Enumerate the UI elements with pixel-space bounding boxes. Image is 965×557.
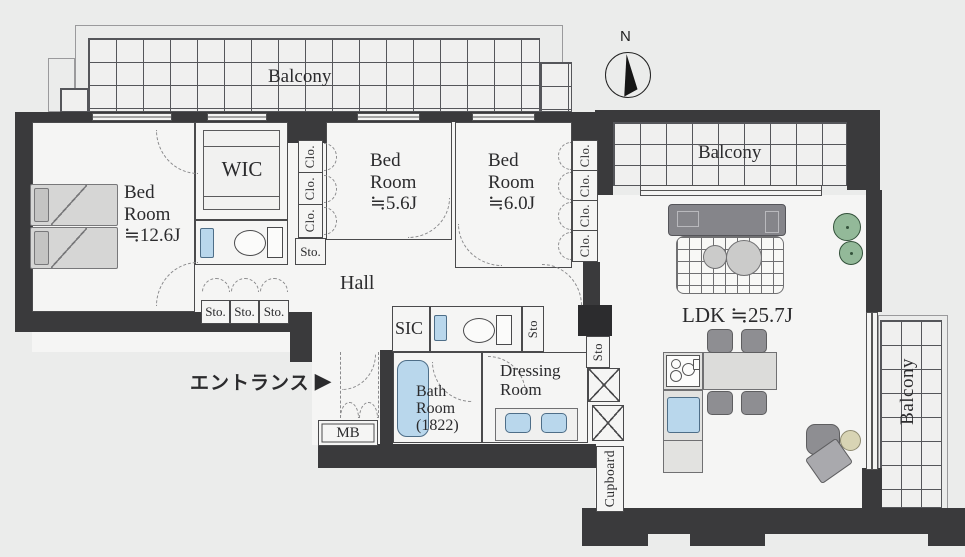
entrance-label: エントランス: [190, 368, 310, 395]
balcony-top-step-left: [60, 88, 88, 112]
plant-icon: [833, 213, 861, 241]
balcony-top-step-right: [540, 62, 572, 112]
bedroom-right-size: ≒6.0J: [488, 193, 535, 215]
toilet-2-tank: [496, 315, 512, 345]
sofa: [668, 204, 786, 236]
closet-label: Clo.: [304, 145, 317, 168]
coffee-table-small: [703, 245, 727, 269]
mb-box: MB: [318, 420, 378, 446]
stove: [666, 355, 700, 387]
bedroom-mid-name-1: Bed: [370, 150, 417, 172]
closet-label: Clo.: [579, 144, 592, 167]
dressing-name-1: Dressing: [500, 362, 560, 381]
closet-cell: Clo.: [298, 204, 323, 238]
entrance-callout: エントランス ▶: [190, 368, 332, 395]
hall-label: Hall: [340, 272, 374, 295]
bath-dimension: (1822): [416, 418, 459, 435]
dining-chair: [707, 391, 733, 415]
bath-label: Bath Room (1822): [416, 384, 459, 435]
kitchen-sink: [667, 397, 700, 433]
window-ldk-right-balcony: [866, 312, 878, 470]
dining-chair: [707, 329, 733, 353]
dressing-sink-2: [541, 413, 567, 433]
bedroom-main-size: ≒12.6J: [124, 225, 181, 247]
balcony-upper-right-label: Balcony: [698, 142, 761, 164]
dressing-sink-1: [505, 413, 531, 433]
wall-pier-mid-top: [288, 112, 326, 143]
compass: N: [600, 30, 660, 102]
wall-bath-left: [380, 350, 393, 445]
ldk-size: ≒25.7J: [730, 303, 793, 327]
kitchen-cabinet-line: [664, 440, 702, 441]
sofa-cushion: [677, 211, 699, 227]
bath-name-2: Room: [416, 401, 459, 418]
wall-entrance-jog: [290, 330, 312, 362]
wall-ldk-bottom-pier-right: [928, 530, 965, 546]
storage-cell-vertical: Sto: [522, 306, 544, 352]
mb-label: MB: [336, 425, 359, 442]
bed-fold-line: [51, 185, 87, 225]
bed-headboard: [34, 188, 49, 222]
plant-icon: [839, 241, 863, 265]
storage-label: Sto.: [234, 304, 255, 320]
hatch-box-2: [592, 405, 624, 441]
storage-cell: Sto.: [201, 300, 230, 324]
dining-table: [703, 352, 777, 390]
shaft-box: [578, 305, 612, 336]
bedroom-mid-size: ≒5.6J: [370, 193, 417, 215]
closet-cell: Clo.: [572, 140, 598, 171]
wall-ldk-right-upper: [866, 190, 882, 312]
stove-grill: [693, 359, 700, 370]
coffee-table-large: [726, 240, 762, 276]
wall-upper-balcony-right: [847, 110, 880, 190]
balcony-top-label: Balcony: [268, 66, 331, 88]
bedroom-main-name-2: Room: [124, 204, 181, 226]
bath-name-1: Bath: [416, 384, 459, 401]
bed: [30, 227, 118, 269]
wall-hall-ldk-pier: [583, 262, 600, 306]
entrance-arrow-icon: ▶: [315, 371, 332, 393]
toilet-2-bowl: [463, 318, 495, 343]
wall-upper-balcony-band: [595, 110, 880, 122]
storage-label: Sto.: [264, 304, 285, 320]
bed-fold-line: [51, 228, 87, 268]
storage-label: Sto: [592, 343, 605, 361]
dining-chair: [741, 329, 767, 353]
balcony-right-label: Balcony: [898, 358, 917, 425]
window-bedroom-main-1: [92, 113, 172, 121]
ldk-label: LDK ≒25.7J: [682, 304, 793, 328]
stove-burner: [670, 370, 682, 382]
bed: [30, 184, 118, 226]
toilet-1-tank: [267, 227, 283, 258]
storage-cell: Sto.: [295, 238, 326, 265]
closet-cell: Clo.: [298, 140, 323, 173]
wall-bath-bottom: [318, 444, 596, 468]
closet-cell: Clo.: [572, 200, 598, 231]
cupboard-label: Cupboard: [603, 450, 617, 507]
window-bedroom-mid: [357, 113, 420, 121]
bedroom-right-name-1: Bed: [488, 150, 535, 172]
closet-label: Clo.: [579, 174, 592, 197]
stove-burner: [671, 359, 681, 369]
wic-label: WIC: [200, 158, 284, 182]
dressing-name-2: Room: [500, 381, 560, 400]
window-ldk-balcony: [640, 185, 822, 196]
wall-ldk-bottom-pier-mid: [690, 530, 765, 546]
bedroom-right-name-2: Room: [488, 172, 535, 194]
storage-cell-vertical: Sto: [586, 336, 610, 368]
dressing-label: Dressing Room: [500, 362, 560, 399]
closet-cell: Clo.: [572, 170, 598, 201]
closet-label: Clo.: [304, 177, 317, 200]
bedroom-right-label: Bed Room ≒6.0J: [488, 150, 535, 215]
window-bedroom-right: [472, 113, 535, 121]
floor-plan: Balcony Balcony Balcony N: [0, 0, 965, 557]
storage-cell: Sto.: [259, 300, 289, 324]
ldk-name: LDK: [682, 303, 725, 327]
toilet-2-sink: [434, 315, 447, 341]
cupboard-cell: Cupboard: [596, 446, 624, 512]
storage-label: Sto.: [205, 304, 226, 320]
bedroom-mid-name-2: Room: [370, 172, 417, 194]
closet-cell: Clo.: [298, 172, 323, 205]
wall-ldk-bottom-pier-left: [582, 508, 648, 546]
dining-chair: [741, 391, 767, 415]
bedroom-main-name-1: Bed: [124, 182, 181, 204]
sic-label: SIC: [395, 318, 423, 339]
closet-cell: Clo.: [572, 230, 598, 262]
bed-headboard: [34, 231, 49, 265]
window-bedroom-main-2: [207, 113, 267, 121]
closet-label: Clo.: [579, 234, 592, 257]
bedroom-main-label: Bed Room ≒12.6J: [124, 182, 181, 247]
wic-shelf-bottom: [203, 196, 280, 197]
toilet-1-sink: [200, 228, 214, 258]
closet-label: Clo.: [304, 209, 317, 232]
storage-label: Sto: [527, 320, 540, 338]
hatch-box-1: [588, 368, 620, 402]
wic-shelf-top: [203, 146, 280, 147]
storage-label: Sto.: [300, 244, 321, 260]
compass-north-label: N: [620, 28, 631, 45]
closet-label: Clo.: [579, 204, 592, 227]
sofa-armrest: [765, 211, 779, 233]
entrance-door-line: [378, 352, 379, 418]
bedroom-mid-label: Bed Room ≒5.6J: [370, 150, 417, 215]
toilet-1-bowl: [234, 230, 266, 256]
storage-cell: Sto.: [230, 300, 259, 324]
